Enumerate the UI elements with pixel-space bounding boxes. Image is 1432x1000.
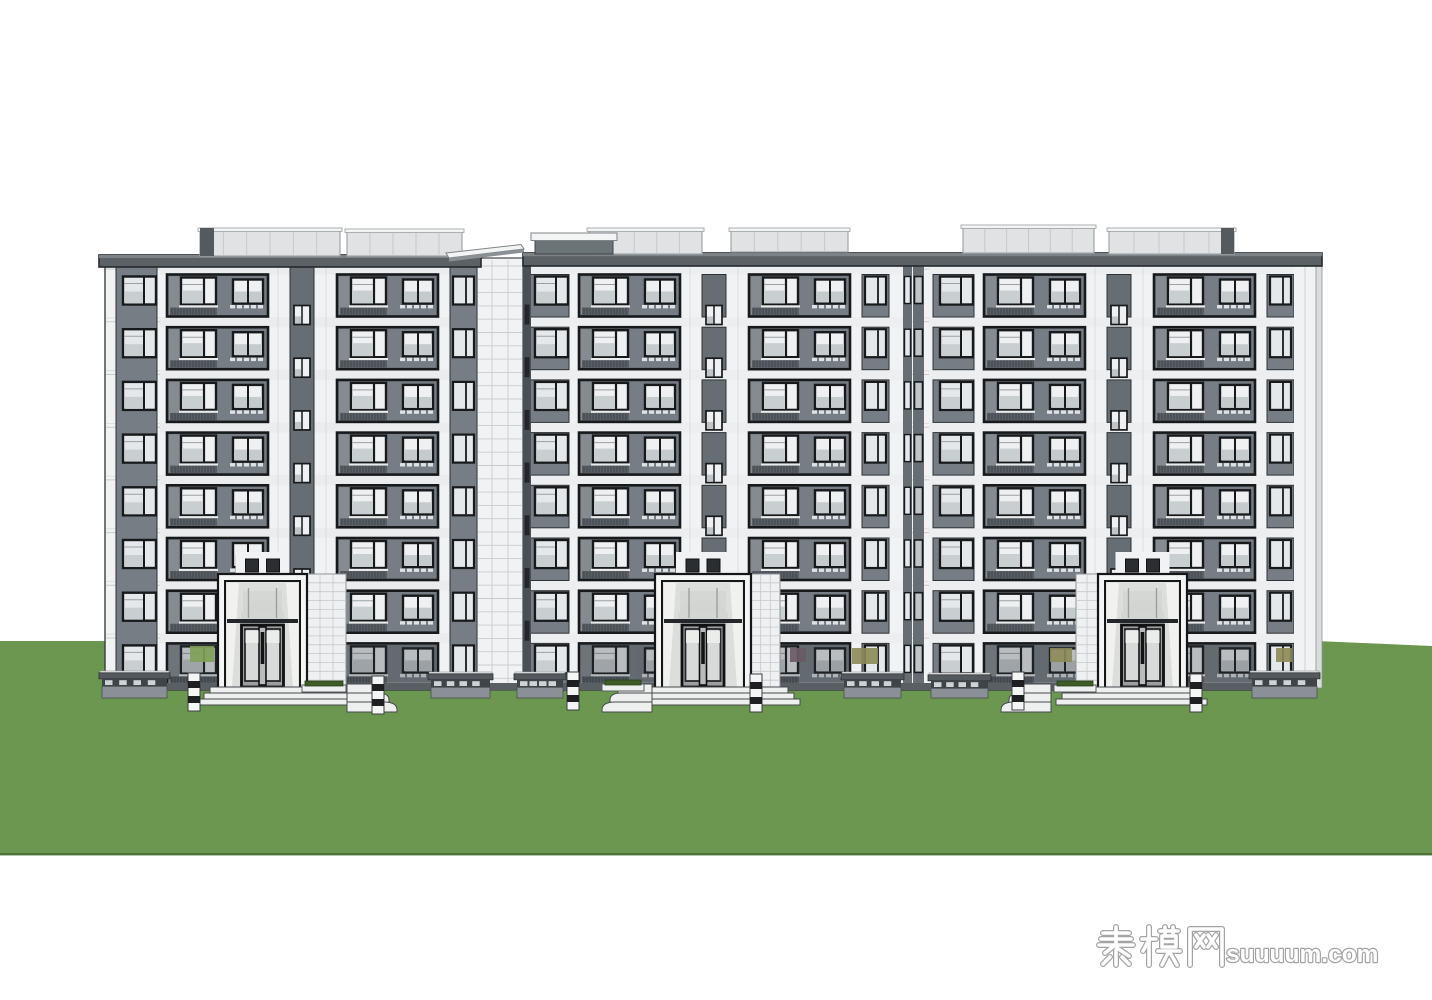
svg-text:suuuum.com: suuuum.com (1226, 941, 1378, 968)
